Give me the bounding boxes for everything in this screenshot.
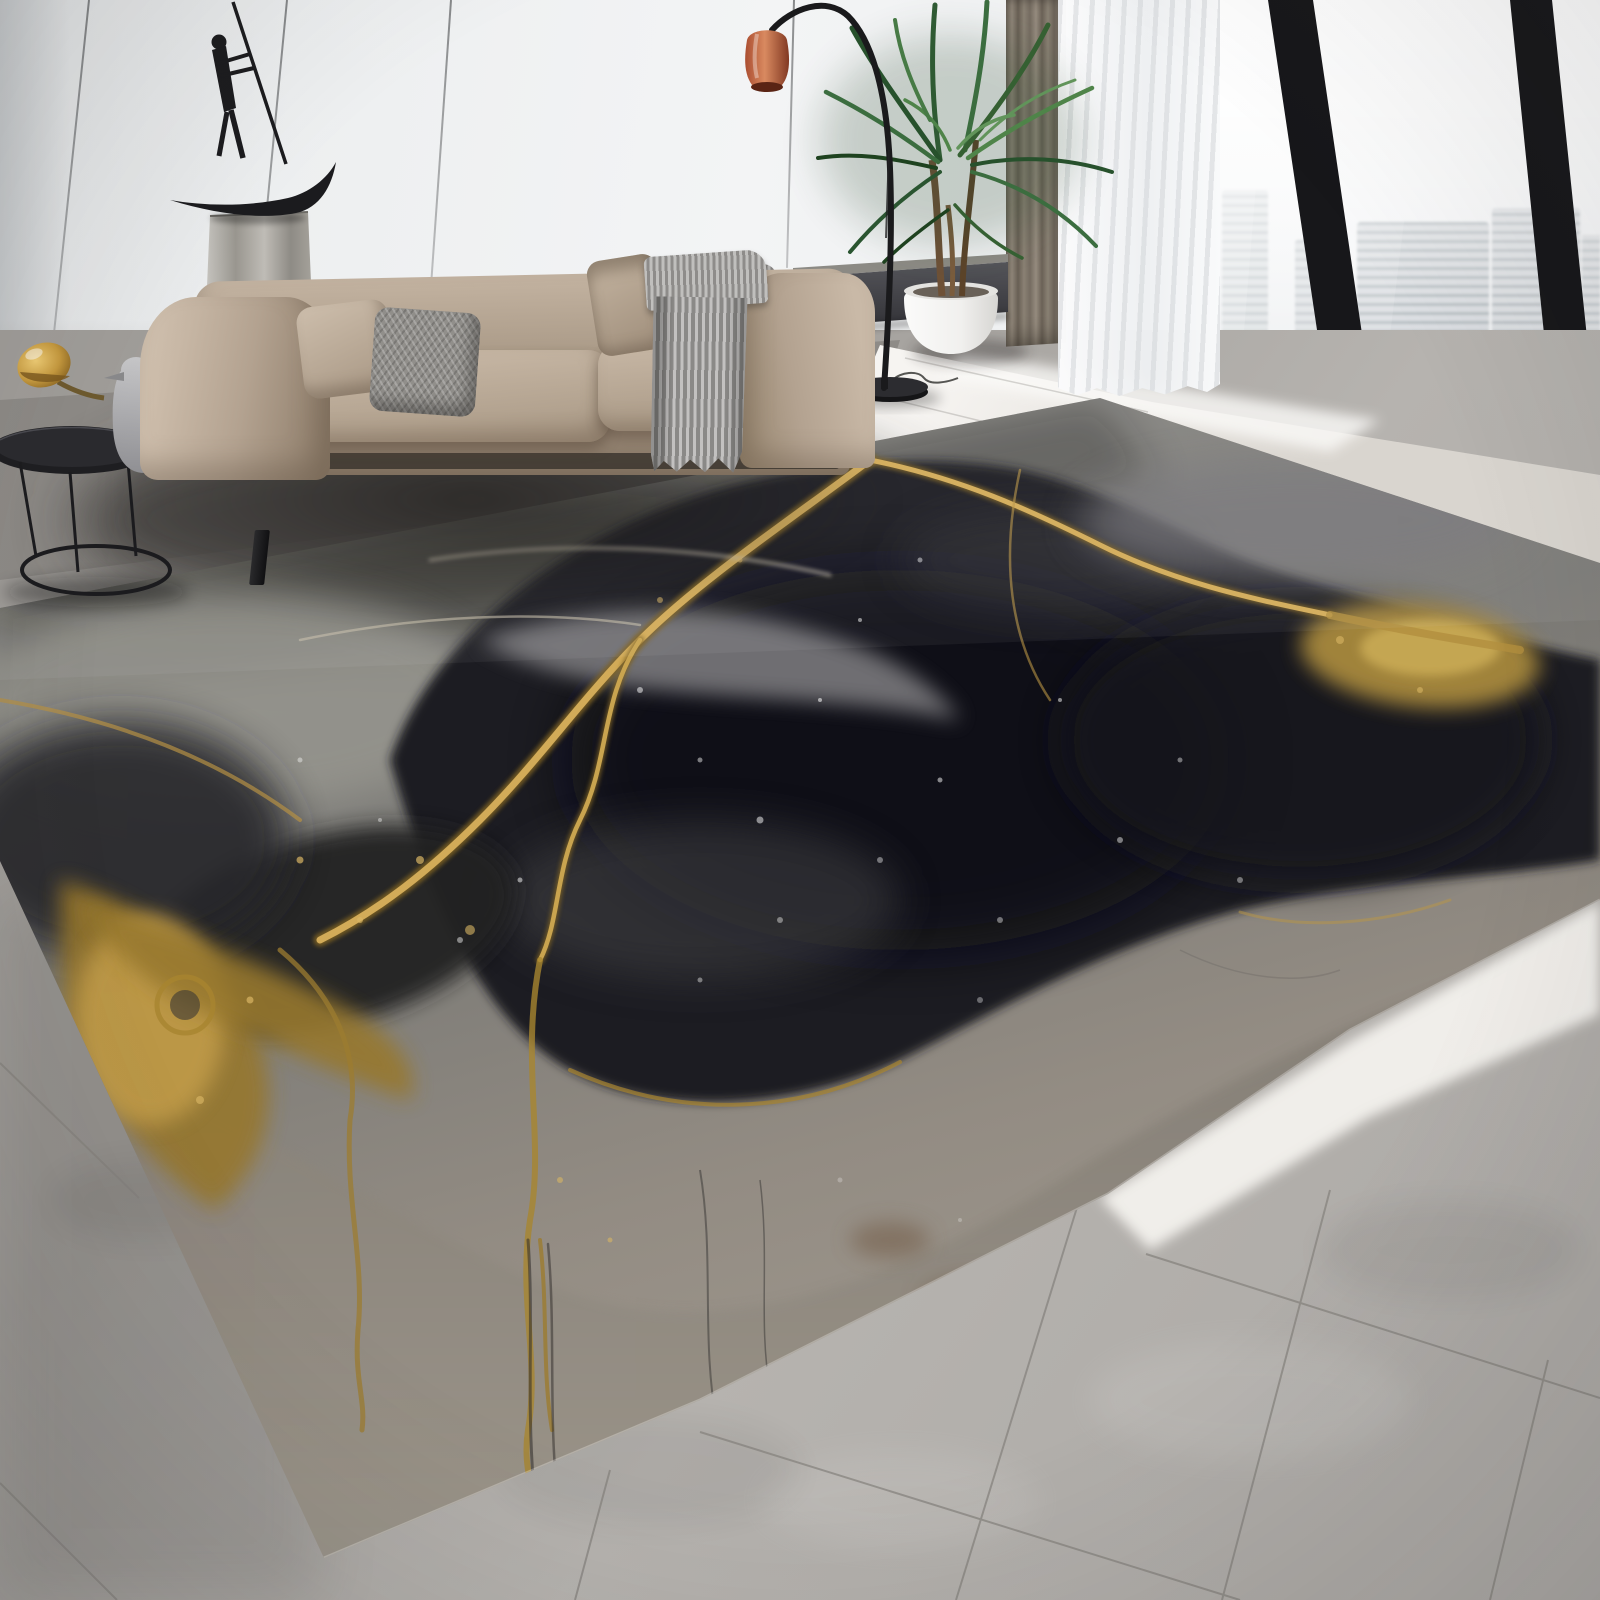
lamp-shade-rim [751, 82, 783, 92]
rower-figure [212, 2, 287, 164]
mushroom-stem [58, 382, 104, 398]
sofa [140, 225, 885, 597]
sofa-leg [249, 530, 270, 585]
living-room-scene [0, 0, 1600, 1600]
pillow-herringbone [369, 306, 482, 417]
throw-blanket-drape [650, 296, 747, 473]
crescent-boat [170, 162, 336, 216]
figurine-beak [104, 372, 124, 381]
